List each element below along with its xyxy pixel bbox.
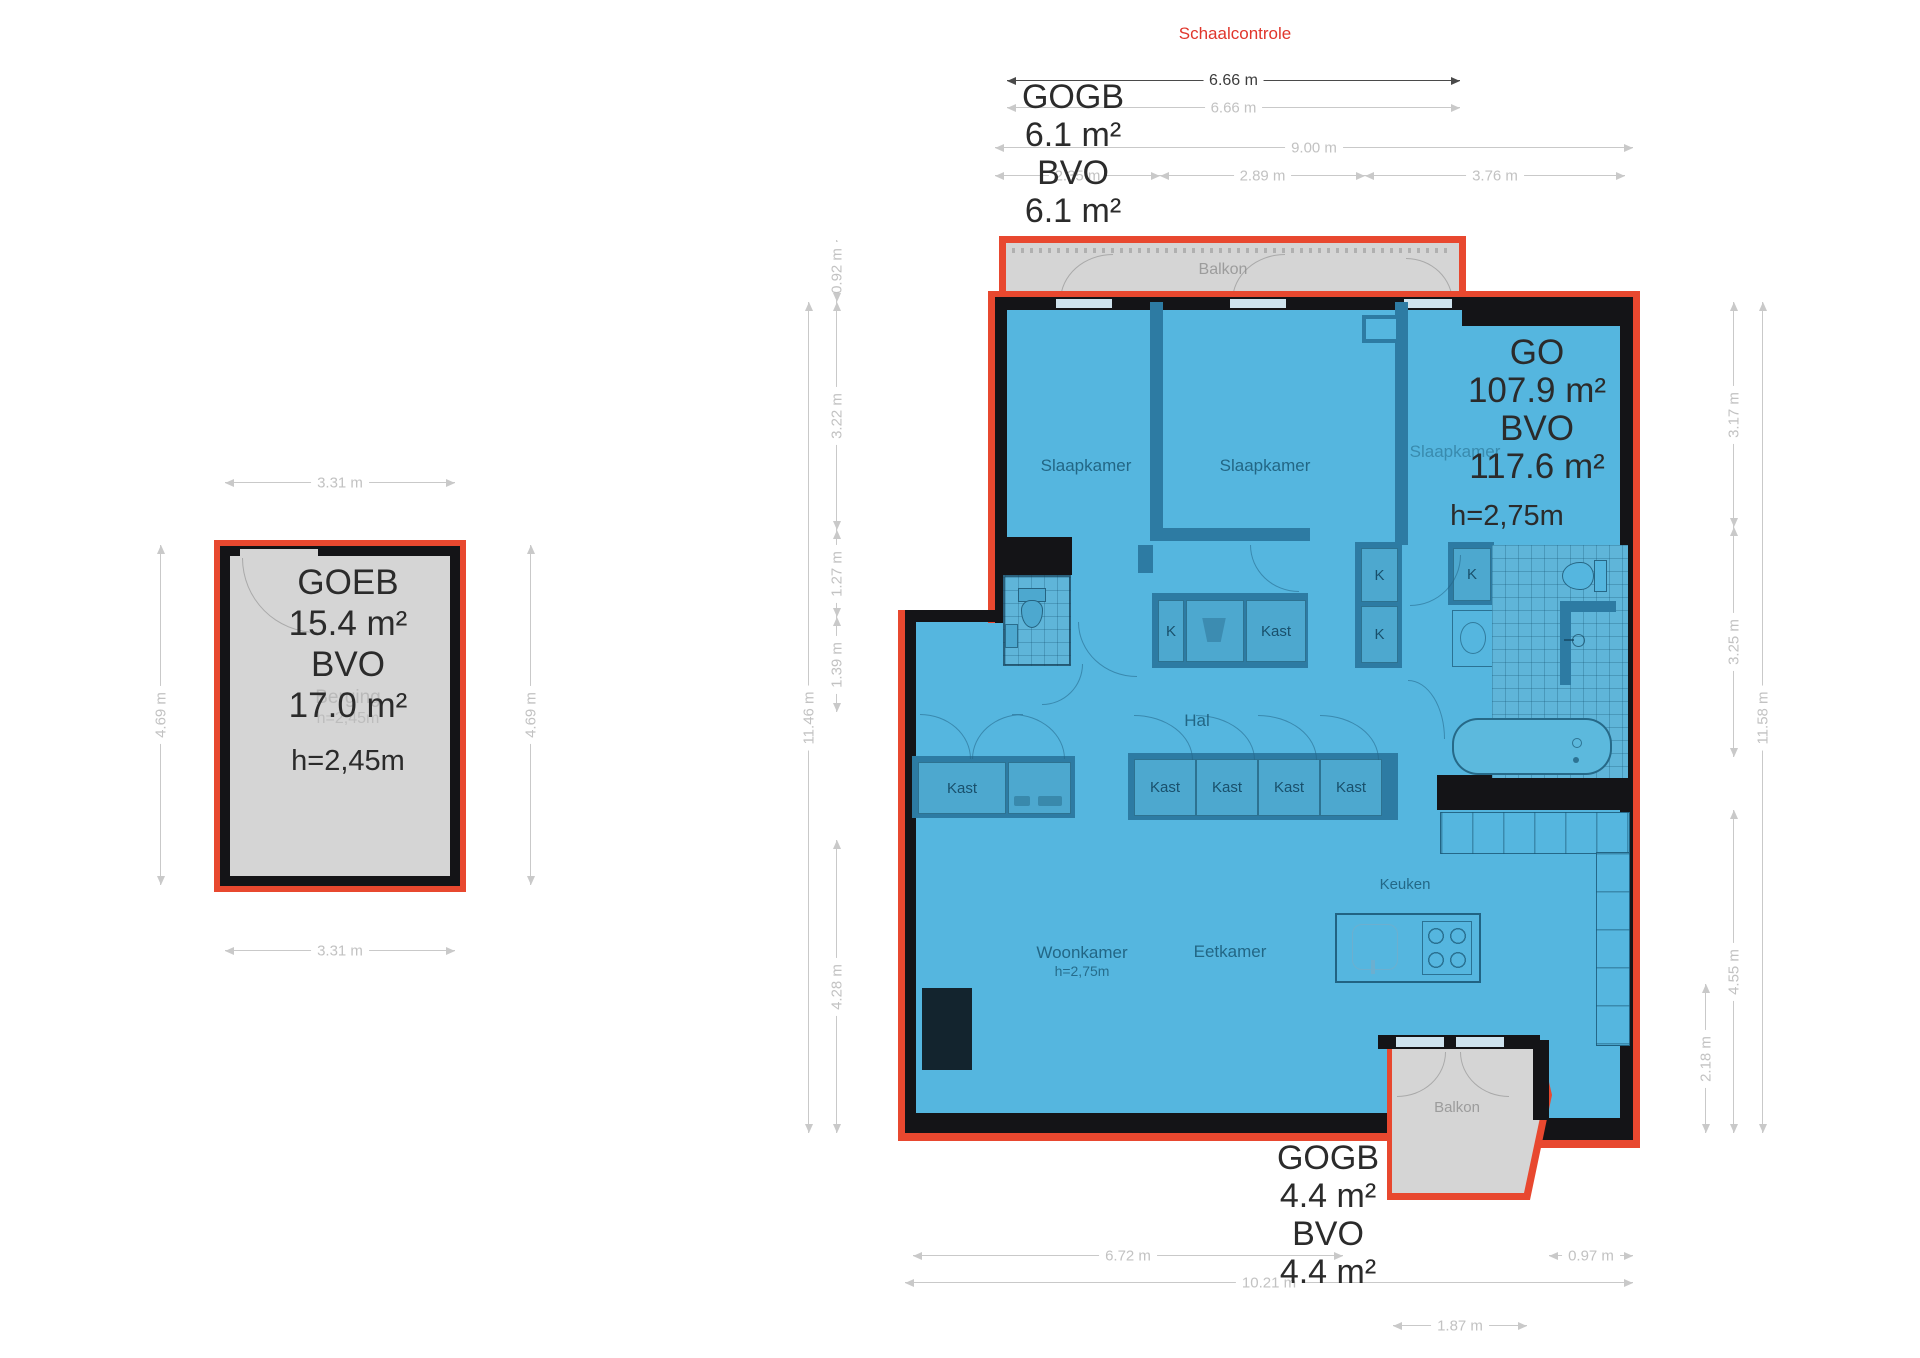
area-top-line-2: 6.1 m² [978,116,1168,154]
area-bottom-line-3: BVO [1233,1215,1423,1253]
outline-bottom-right [1533,1140,1640,1148]
dim-top-seg-3: 3.76 m [1365,175,1625,176]
bathroom-toilet-tank [1594,560,1607,592]
closet-k-1: K [1158,600,1184,662]
wall-step [905,610,1007,622]
shower-partition-h [1560,601,1616,612]
top-balcony-railing [1012,248,1453,253]
berging-area-text: GOEB 15.4 m² BVO 17.0 m² [248,562,448,726]
area-block-top-balcony: GOGB 6.1 m² BVO 6.1 m² [978,78,1168,230]
bedroom1-label: Slaapkamer [1026,457,1146,475]
area-main-line-1: GO [1402,334,1672,372]
dim-berging-top: 3.31 m [225,482,455,483]
dim-left-seg-2: 3.22 m [836,302,837,530]
balcony-door-gap-2 [1230,299,1286,308]
closet-kast-1: Kast [1246,600,1306,662]
kitchen-counter-top [1440,812,1630,854]
dim-berging-left: 4.69 m [160,545,161,885]
dim-bottom-balcony: 1.87 m [1393,1325,1527,1326]
closet-kast-3: Kast [1134,759,1196,816]
wall-bedroom1-2 [1150,302,1163,533]
shower-arm-icon [1564,639,1574,641]
bathtub [1452,718,1612,775]
area-main-line-4: 117.6 m² [1402,448,1672,486]
appliance-icon-1 [1014,796,1030,806]
living-height-label: h=2,75m [1022,963,1142,979]
berging-area-line-4: 17.0 m² [248,685,448,726]
island-sink-icon [1352,924,1398,970]
berging-area-line-1: GOEB [248,562,448,603]
closet-kast-4: Kast [1196,759,1258,816]
area-bottom-line-1: GOGB [1233,1139,1423,1177]
bottom-balcony-label: Balkon [1414,1099,1500,1115]
shaft-bedroom1 [1000,537,1072,575]
dim-left-outer: 11.46 m [808,302,809,1133]
wall-left-lower [905,610,916,1133]
dim-left-seg-3: 1.27 m [836,530,837,617]
closet-appliance [1008,762,1071,814]
area-block-main: GO 107.9 m² BVO 117.6 m² [1402,334,1672,486]
shower-partition-v [1560,601,1571,685]
island-faucet-icon [1371,960,1375,974]
wall-bottom-balcony-right [1533,1040,1549,1120]
wall-top-right-thick [1462,302,1620,326]
dim-right-seg-3: 4.55 m [1733,810,1734,1133]
dim-right-seg-1: 3.17 m [1733,302,1734,527]
wall-notch [1138,545,1153,573]
dim-right-seg-2: 3.25 m [1733,527,1734,757]
bathtub-drain-icon [1572,738,1582,748]
dim-bottom-right: 0.97 m [1549,1255,1633,1256]
dim-right-seg-4: 2.18 m [1705,984,1706,1133]
dim-left-seg-1: 0.92 m [836,240,837,302]
area-top-line-4: 6.1 m² [978,192,1168,230]
bathtub-faucet-icon [1573,757,1579,763]
berging-height-label: h=2,45m [248,745,448,777]
hall-label: Hal [1157,712,1237,730]
appliance-icon-2 [1038,796,1062,806]
area-main-line-2: 107.9 m² [1402,372,1672,410]
dining-label: Eetkamer [1170,943,1290,961]
closet-kast-2: Kast [918,762,1006,814]
area-bottom-line-2: 4.4 m² [1233,1177,1423,1215]
closet-kast-5: Kast [1258,759,1320,816]
area-main-line-3: BVO [1402,410,1672,448]
living-wall-unit [922,988,972,1070]
berging-area-line-3: BVO [248,644,448,685]
balcony-door-gap-3 [1404,299,1452,308]
area-top-line-1: GOGB [978,78,1168,116]
closet-k-3: K [1361,606,1398,663]
area-bottom-line-4: 4.4 m² [1233,1253,1423,1291]
dim-left-seg-5: 4.28 m [836,840,837,1133]
dim-top-seg-2: 2.89 m [1160,175,1365,176]
dim-left-seg-4: 1.39 m [836,617,837,712]
dim-berging-right: 4.69 m [530,545,531,885]
dim-scale-check-value: 6.66 m [1203,72,1264,90]
kitchen-counter-right [1596,852,1630,1046]
wall-bottom-left [905,1113,1394,1133]
closet-k-2: K [1361,548,1398,602]
bathroom-toilet-bowl [1562,562,1594,590]
bedroom2-label: Slaapkamer [1205,457,1325,475]
area-block-bottom-balcony: GOGB 4.4 m² BVO 4.4 m² [1233,1139,1423,1291]
toilet-sink-icon [1005,624,1018,648]
closet-kast-6: Kast [1320,759,1382,816]
scale-check-label: Schaalcontrole [1160,24,1310,44]
bottom-balcony-door-gap-2 [1456,1037,1504,1047]
living-label: Woonkamer [1022,944,1142,962]
area-top-line-3: BVO [978,154,1168,192]
berging-door-opening [240,549,318,558]
dim-berging-bottom: 3.31 m [225,950,455,951]
closet-bedroom3-top-inner [1366,319,1396,339]
bottom-balcony-door-gap-1 [1396,1037,1444,1047]
island-hob-icon [1422,921,1472,975]
dim-right-outer: 11.58 m [1762,302,1763,1133]
vanity-basin [1460,622,1486,654]
wall-bath-kitchen [1437,775,1628,810]
floorplan-canvas: Schaalcontrole 6.66 m 6.66 m 9.00 m 2.35… [0,0,1920,1358]
berging-area-line-2: 15.4 m² [248,603,448,644]
main-height-label: h=2,75m [1402,500,1612,532]
balcony-door-gap-1 [1056,299,1112,308]
wall-bedroom2-bottom [1150,528,1310,541]
kitchen-label: Keuken [1365,876,1445,892]
